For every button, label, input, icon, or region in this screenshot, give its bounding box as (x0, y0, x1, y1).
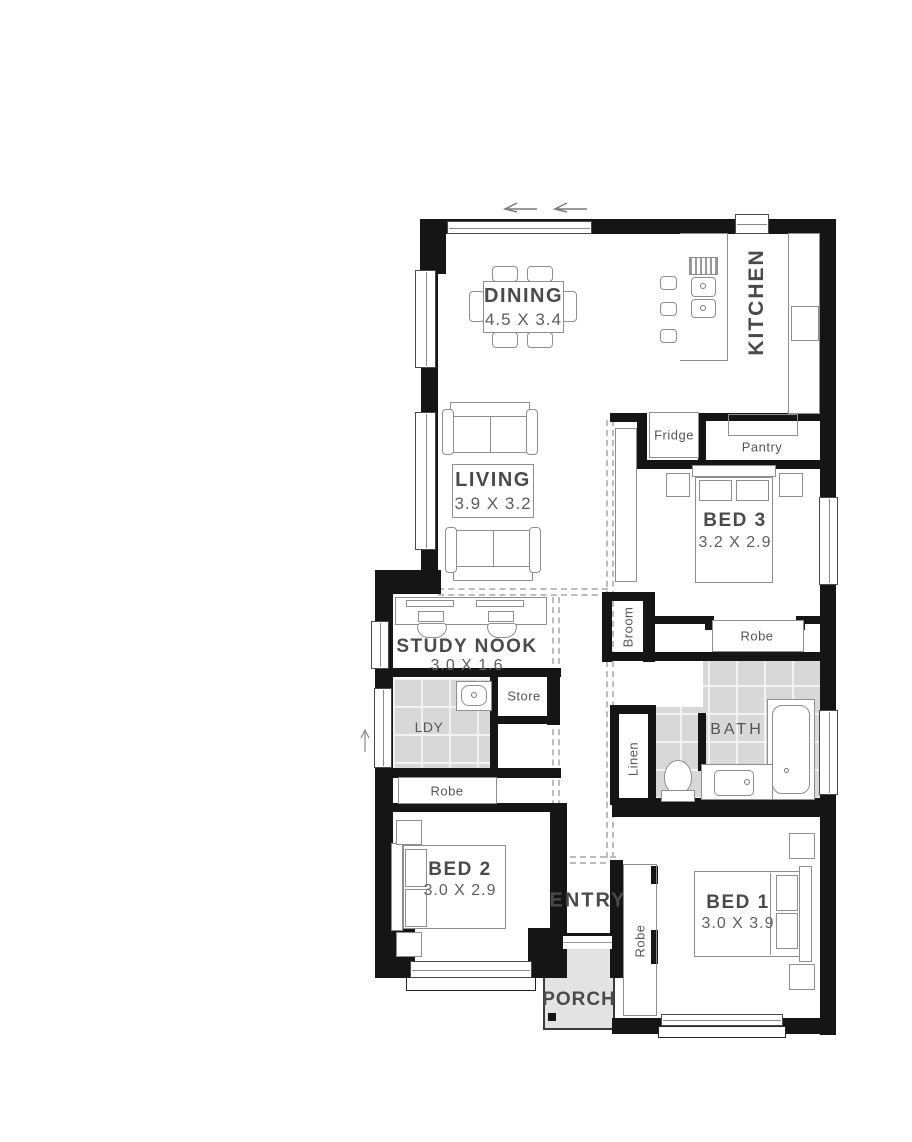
study-nook-window (371, 621, 389, 669)
sliding-door-arrow-icon (485, 200, 605, 218)
hall-dashed-line (438, 588, 608, 590)
hall-cupboard (615, 428, 637, 582)
bed2-side-table (396, 820, 422, 845)
bathtub-drain (784, 768, 789, 773)
bed2-side-table (396, 932, 422, 957)
bed2-window (410, 961, 532, 978)
sink-drainer (689, 257, 718, 275)
bed3-pillow (699, 480, 732, 501)
study-nook-label: STUDY NOOK (396, 636, 537, 658)
desk-keyboard (488, 611, 514, 622)
wall-segment (375, 803, 567, 812)
window-sill (406, 977, 536, 991)
dining-chair (492, 332, 518, 348)
bath-window (819, 710, 838, 795)
kitchen-stool (660, 329, 677, 343)
pantry-label: Pantry (742, 440, 783, 455)
oven (791, 306, 819, 341)
bed1-pillow (776, 913, 798, 949)
sofa (450, 402, 530, 417)
sofa (453, 566, 533, 581)
wall-segment (648, 713, 656, 803)
bed3-dims: 3.2 X 2.9 (698, 534, 771, 552)
sink-tap (700, 305, 706, 311)
bed1-pillow (776, 875, 798, 911)
wall-segment (610, 860, 623, 978)
bed1-side-table (789, 964, 815, 990)
store-label: Store (507, 689, 541, 704)
bed2-robe-label: Robe (430, 784, 463, 799)
window-sill (658, 1026, 786, 1038)
desk-shelf (406, 600, 454, 607)
laundry-door (374, 688, 392, 768)
sofa-arm (526, 409, 538, 455)
wall-segment (698, 713, 706, 771)
porch-label: PORCH (542, 989, 616, 1011)
porch-post (548, 1013, 556, 1021)
sofa-cushion-line (493, 531, 494, 566)
living-label: LIVING (455, 469, 531, 492)
bed3-pillow (736, 480, 769, 501)
desk-shelf (476, 600, 524, 607)
dining-chair (492, 266, 518, 282)
bed1-side-table (789, 833, 815, 859)
living-label-box: LIVING 3.9 X 3.2 (452, 464, 534, 518)
wall-segment (602, 652, 822, 661)
kitchen-stool (660, 276, 677, 290)
bed3-label: BED 3 (703, 510, 766, 532)
wall-segment (610, 705, 619, 805)
linen-label: Linen (626, 742, 641, 776)
bed3-robe-label: Robe (740, 629, 773, 644)
floor-plan: DINING 4.5 X 3.4 KITCHEN Fridge Pantry B… (0, 0, 912, 1142)
sofa-cushion-line (490, 417, 491, 452)
pantry-shelf (728, 414, 798, 436)
wall-segment (645, 616, 712, 624)
bed1-headboard (799, 866, 812, 962)
sofa-arm (445, 527, 457, 573)
bed2-dims: 3.0 X 2.9 (423, 882, 496, 900)
dining-table: DINING 4.5 X 3.4 (483, 281, 564, 333)
kitchen-stool (660, 302, 677, 316)
bed1-window (661, 1014, 783, 1026)
study-nook-dims: 3.0 X 1.6 (430, 657, 503, 675)
sofa-arm (442, 409, 454, 455)
entry-label: ENTRY (549, 890, 626, 913)
living-dims: 3.9 X 3.2 (454, 494, 531, 514)
hall-dashed-line (438, 594, 608, 596)
wall-segment (820, 219, 836, 1035)
wall-segment (612, 805, 822, 817)
laundry-tap (471, 692, 477, 698)
bed1-sheet-line (770, 873, 771, 955)
front-door (563, 933, 612, 949)
toilet-cistern (661, 790, 695, 802)
wall-segment (498, 716, 560, 724)
bath-label: BATH (710, 721, 763, 739)
vanity-tap (744, 779, 750, 785)
bed2-headboard (391, 843, 403, 931)
living-window (415, 412, 436, 550)
laundry-door-arrow-icon (358, 726, 372, 754)
bed3-side-table (779, 473, 803, 497)
sink-tap (700, 283, 706, 289)
bathtub-inner (772, 705, 810, 794)
dining-dims: 4.5 X 3.4 (485, 310, 562, 330)
dining-window (415, 270, 436, 368)
broom-label: Broom (621, 607, 636, 648)
bed1-robe-label: Robe (633, 924, 648, 957)
dining-chair (527, 332, 553, 348)
sliding-door (447, 221, 592, 234)
wall-segment (698, 413, 706, 465)
bed3-side-table (666, 473, 690, 497)
bed1-label: BED 1 (706, 892, 769, 914)
dining-label: DINING (484, 285, 563, 308)
kitchen-label: KITCHEN (745, 248, 769, 355)
toilet-bowl (664, 760, 692, 794)
kitchen-island (680, 233, 728, 361)
laundry-label: LDY (415, 719, 444, 735)
dining-chair (527, 266, 553, 282)
desk-keyboard (418, 611, 444, 622)
bed1-dims: 3.0 X 3.9 (701, 915, 774, 933)
bed3-headboard (692, 465, 776, 477)
kitchen-window (735, 214, 769, 234)
bed3-window (819, 497, 838, 585)
sofa-arm (529, 527, 541, 573)
fridge-label: Fridge (654, 428, 694, 443)
bath-entry-floor (652, 657, 703, 707)
bed2-label: BED 2 (428, 859, 491, 881)
